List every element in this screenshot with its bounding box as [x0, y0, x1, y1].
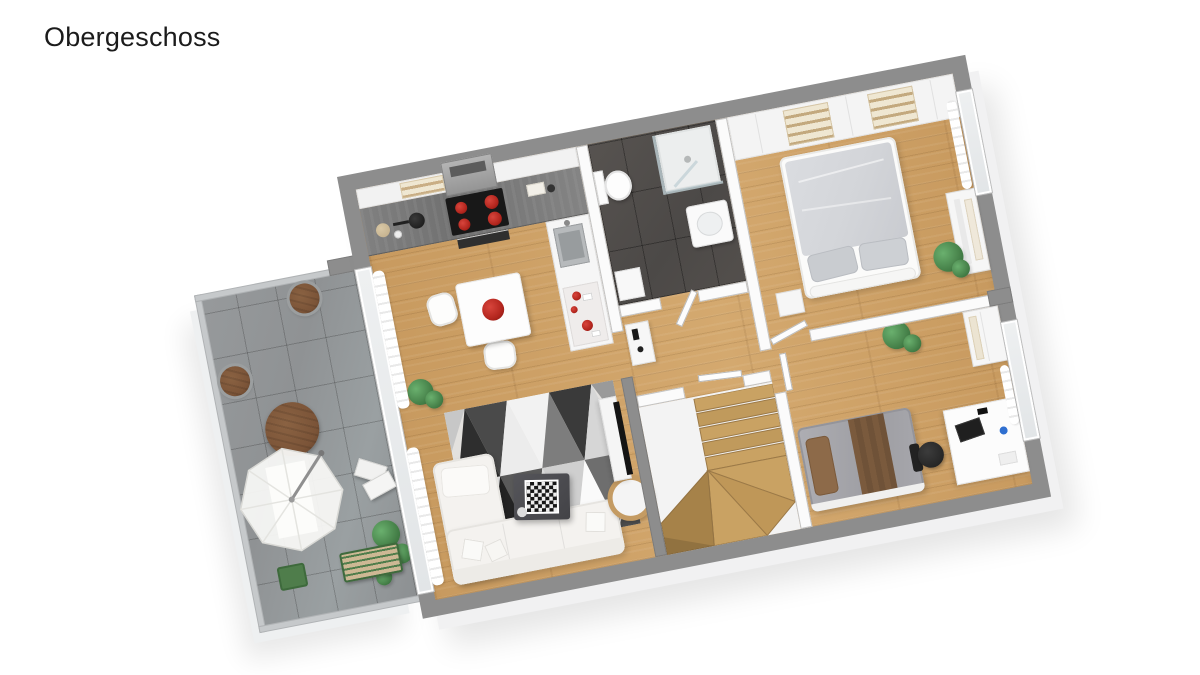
daybed-pillow — [805, 435, 840, 497]
burner-3 — [457, 218, 471, 232]
wardrobe-seam-1 — [755, 114, 764, 153]
shelf-item-plate — [591, 330, 601, 338]
laptop — [955, 417, 985, 442]
coffee-table — [513, 473, 570, 520]
shelf-item-cup — [582, 293, 593, 302]
wardrobe-seam-3 — [929, 80, 938, 119]
sink-basin — [558, 230, 585, 262]
hall-decor-vase — [632, 328, 640, 340]
shower-drain — [683, 155, 691, 163]
floor-title: Obergeschoss — [44, 22, 221, 53]
pillow-right — [858, 237, 910, 272]
floorplan-scene: Obergeschoss — [0, 0, 1200, 675]
shelf-item-teapot — [581, 319, 594, 332]
duvet-fold-2 — [802, 197, 891, 212]
staircase — [639, 384, 801, 555]
duvet-fold-1 — [798, 158, 884, 183]
sofa-pillow-3 — [585, 512, 605, 532]
table-decor-ball — [517, 507, 527, 517]
fruit-bowl — [480, 297, 506, 323]
desk-paper — [998, 451, 1018, 466]
rotated-floorplan — [101, 51, 1080, 675]
burner-4 — [487, 210, 503, 226]
sofa-pillow-2 — [484, 539, 508, 563]
wardrobe-seam-2 — [845, 96, 854, 135]
nightstand — [775, 289, 805, 318]
dining-chair-2 — [482, 339, 517, 371]
burner-2 — [483, 194, 499, 210]
hall-decor-bowl — [637, 346, 644, 353]
wardrobe-shelves-1 — [783, 102, 835, 146]
shelf-item-red-1 — [571, 291, 582, 302]
bathroom-vanity — [685, 199, 734, 248]
burner-1 — [454, 201, 468, 215]
shelf-item-red-2 — [570, 306, 578, 314]
sofa-pillow-1 — [461, 539, 484, 562]
sofa-cushion — [440, 464, 490, 498]
chessboard — [527, 482, 558, 513]
desk-mug — [999, 426, 1008, 435]
desk-phone — [977, 407, 988, 415]
building — [337, 55, 1051, 619]
bathroom-cabinet — [614, 267, 645, 301]
bathroom-sink — [695, 209, 725, 238]
parasol-umbrella — [224, 432, 360, 568]
dining-table — [455, 272, 532, 347]
range-hood-vent — [449, 161, 486, 178]
wall-jog-east — [987, 287, 1014, 307]
wardrobe-shelves-2 — [867, 86, 919, 130]
